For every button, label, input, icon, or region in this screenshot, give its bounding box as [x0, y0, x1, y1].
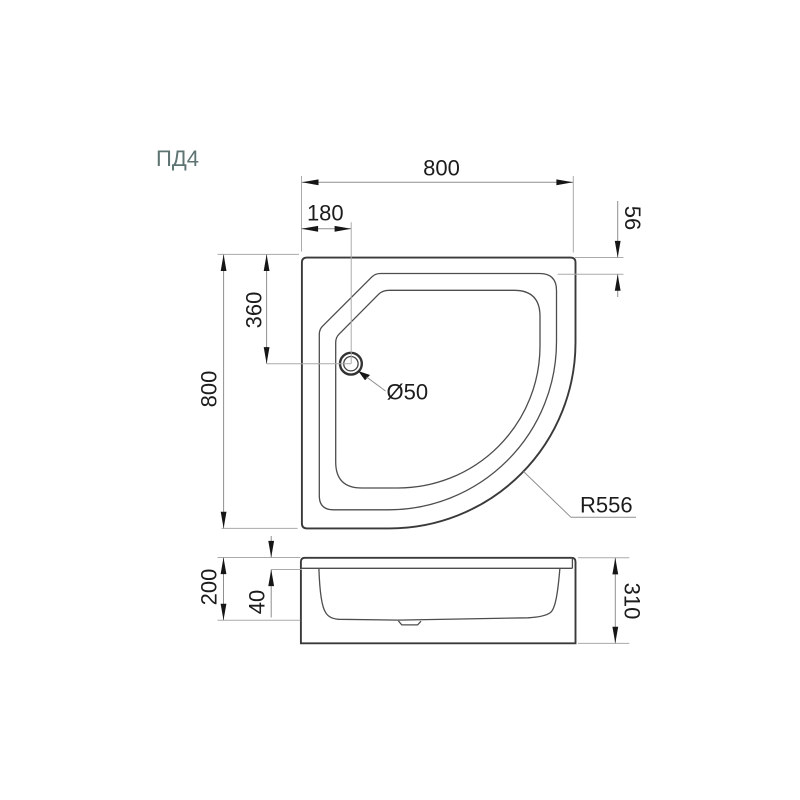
- svg-text:800: 800: [423, 156, 460, 181]
- svg-text:180: 180: [307, 201, 344, 226]
- svg-text:ПД4: ПД4: [156, 146, 199, 171]
- svg-text:R556: R556: [580, 493, 633, 518]
- svg-text:800: 800: [197, 371, 222, 408]
- svg-text:40: 40: [245, 590, 270, 614]
- svg-text:360: 360: [242, 292, 267, 329]
- svg-text:56: 56: [620, 206, 645, 230]
- svg-text:200: 200: [197, 569, 222, 606]
- svg-text:Ø50: Ø50: [387, 380, 429, 405]
- svg-text:310: 310: [620, 583, 645, 620]
